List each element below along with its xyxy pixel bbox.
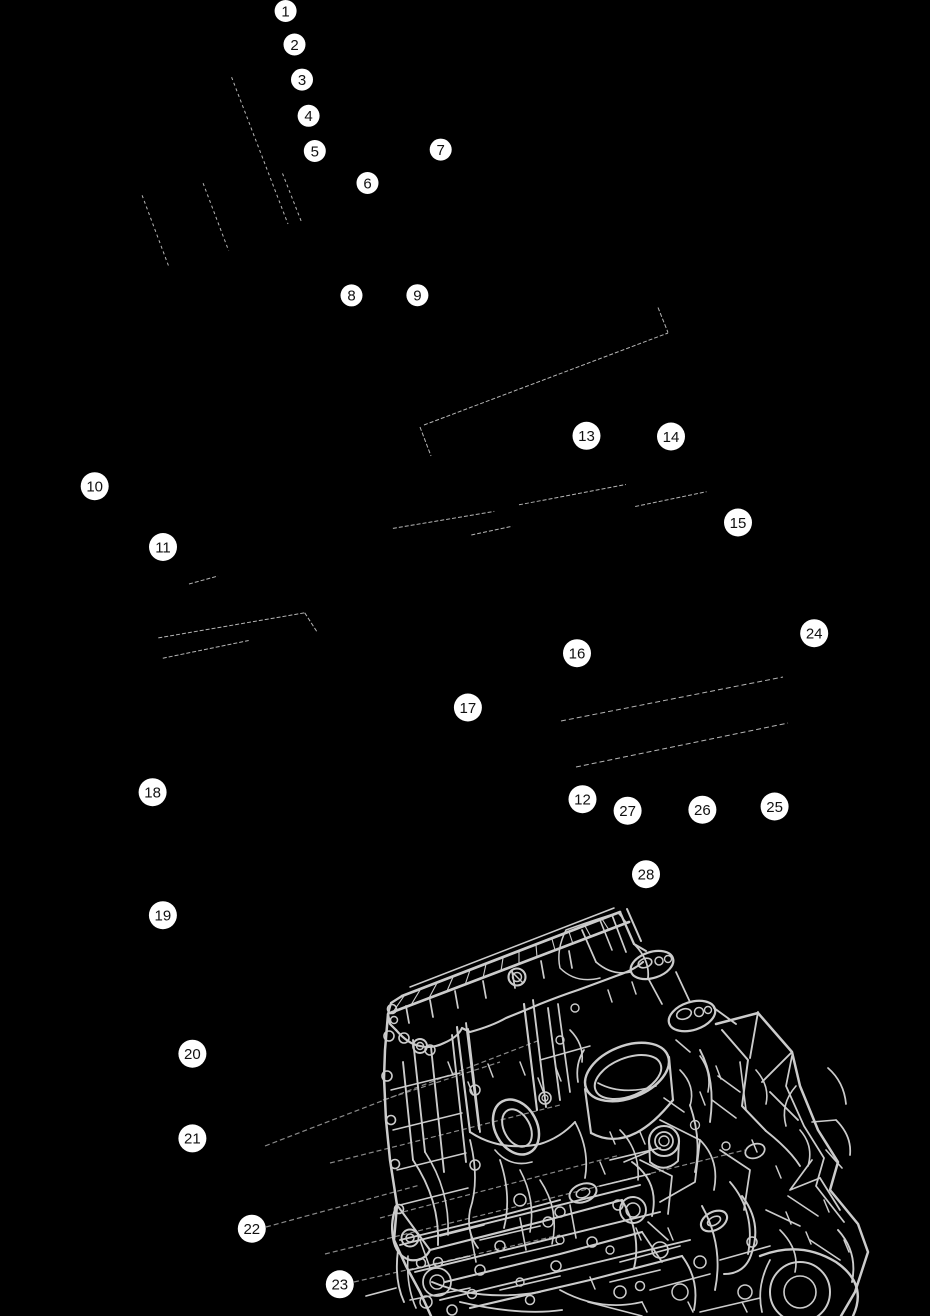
- svg-text:10: 10: [86, 479, 103, 496]
- svg-text:24: 24: [806, 626, 823, 643]
- svg-text:6: 6: [363, 175, 371, 192]
- svg-text:20: 20: [184, 1046, 201, 1063]
- svg-text:12: 12: [574, 792, 591, 809]
- svg-text:1: 1: [281, 3, 289, 20]
- svg-text:26: 26: [694, 802, 711, 819]
- svg-text:11: 11: [155, 539, 171, 556]
- svg-text:16: 16: [569, 646, 586, 663]
- svg-text:2: 2: [290, 37, 298, 54]
- svg-text:18: 18: [144, 785, 161, 802]
- svg-text:17: 17: [460, 700, 477, 717]
- svg-text:9: 9: [413, 288, 421, 305]
- svg-text:28: 28: [638, 867, 655, 884]
- svg-text:15: 15: [730, 515, 747, 532]
- svg-text:8: 8: [347, 288, 355, 305]
- svg-text:14: 14: [663, 429, 680, 446]
- svg-text:13: 13: [578, 428, 595, 445]
- svg-text:22: 22: [243, 1221, 260, 1238]
- svg-text:21: 21: [184, 1131, 201, 1148]
- svg-text:5: 5: [311, 143, 319, 160]
- svg-text:7: 7: [437, 142, 445, 159]
- svg-text:23: 23: [331, 1277, 348, 1294]
- svg-text:4: 4: [304, 108, 312, 125]
- svg-text:27: 27: [619, 803, 636, 820]
- svg-text:19: 19: [155, 908, 172, 925]
- svg-text:25: 25: [766, 799, 783, 816]
- svg-text:3: 3: [298, 72, 306, 89]
